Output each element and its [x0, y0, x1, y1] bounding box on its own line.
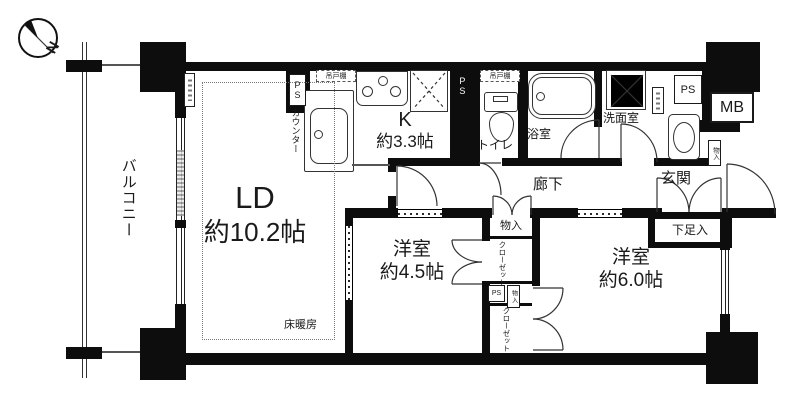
- washroom-label: 洗面室: [603, 112, 639, 125]
- sliding-door-bedroom-large[interactable]: [578, 209, 622, 218]
- window-shade-hatch: [177, 150, 184, 216]
- living-door[interactable]: [396, 166, 438, 208]
- toilet-door[interactable]: [478, 162, 502, 196]
- window-living-2: [176, 228, 185, 304]
- bathroom-label: 浴室: [527, 128, 551, 141]
- burner-icon-1: [362, 86, 373, 97]
- bedroom-small-name: 洋室: [358, 240, 466, 260]
- pillar-bottom-left: [140, 328, 186, 380]
- closet-large-doors[interactable]: [532, 287, 564, 351]
- meter-box-label: MB: [720, 99, 744, 117]
- balcony-railing: [82, 42, 87, 378]
- window-mullion: [175, 220, 186, 228]
- wall-top: [140, 62, 760, 71]
- hanging-cupboard-toilet-label: 吊戸棚: [490, 71, 511, 81]
- hallway-label: 廊下: [533, 177, 563, 193]
- wall-toilet-bath: [518, 71, 528, 166]
- hall-storage-doors[interactable]: [492, 196, 532, 216]
- wall-hall-south-a: [345, 208, 398, 218]
- kitchen-size: 約3.3帖: [355, 133, 455, 151]
- shoe-cabinet-label: 下足入: [672, 224, 708, 237]
- tiny-washroom-label: [652, 87, 664, 114]
- storage-mid-tiny: 物入: [507, 285, 520, 308]
- kitchen-name: K: [355, 110, 455, 131]
- pillar-top-right: [706, 42, 760, 92]
- bedroom-large-name: 洋室: [568, 248, 694, 268]
- wall-storage-div-2: [484, 281, 532, 284]
- hanging-cupboard-kitchen-label: 吊戸棚: [326, 71, 347, 81]
- sliding-partition-ld[interactable]: [345, 226, 353, 300]
- bedroom-large-label: 洋室 約6.0帖: [568, 248, 694, 291]
- north-compass-icon: [12, 12, 66, 66]
- floor-heating-area: [202, 82, 335, 340]
- toilet-button: [493, 96, 508, 102]
- bathroom-door[interactable]: [560, 120, 600, 160]
- burner-icon-2: [378, 76, 388, 86]
- counter-edge-line: [352, 164, 390, 166]
- toilet-tank: [484, 92, 518, 112]
- entrance-storage: 物入: [708, 140, 721, 166]
- bedroom-large-size: 約6.0帖: [568, 271, 694, 291]
- shoe-cabinet: 下足入: [655, 219, 725, 242]
- wall-east-lower: [720, 314, 730, 334]
- refrigerator-space: [410, 70, 448, 112]
- hall-storage-label: 物入: [490, 221, 532, 233]
- entrance-door[interactable]: [726, 164, 776, 216]
- kitchen-label: K 約3.3帖: [355, 110, 455, 151]
- wall-storage-div-1: [482, 236, 540, 239]
- washroom-door[interactable]: [620, 124, 658, 164]
- toilet-label: トイレ: [477, 139, 513, 152]
- ps-kitchen-right-label: PS: [457, 76, 466, 96]
- wall-storage-col-right: [532, 215, 540, 286]
- bedroom-small-size: 約4.5帖: [358, 263, 466, 283]
- wall-tick-bottom: [66, 347, 102, 359]
- storage-mid-text: 物入: [510, 290, 516, 304]
- washer-space: [606, 70, 646, 110]
- burner-icon-3: [390, 86, 401, 97]
- entrance-storage-label: 物入: [710, 147, 720, 160]
- hanging-cupboard-kitchen: 吊戸棚: [316, 70, 356, 82]
- sliding-door-bedroom-small[interactable]: [398, 209, 442, 218]
- floor-plan: N バルコニー 物入 クローゼット PS 物入: [0, 0, 800, 416]
- wall-ld-divider-bottom: [345, 300, 353, 355]
- balcony-label: バルコニー: [120, 158, 136, 238]
- ps-washroom: PS: [674, 75, 702, 104]
- vanity-basin-icon: [673, 122, 695, 153]
- pillar-bottom-right: [706, 332, 758, 384]
- wall-ld-divider-top: [345, 218, 353, 226]
- bath-faucet-icon: [536, 92, 545, 101]
- wall-hall-north-b: [502, 158, 528, 166]
- bedroom-small-label: 洋室 約4.5帖: [358, 240, 466, 283]
- closet-large-label: クローゼット: [502, 307, 510, 352]
- ps-mid-label: PS: [488, 285, 505, 302]
- wall-east-upper: [720, 218, 730, 250]
- window-bedroom-large: [721, 250, 729, 314]
- wall-tick-top: [66, 60, 102, 72]
- wall-washroom-east: [702, 71, 710, 124]
- tiny-wall-label: [184, 73, 195, 107]
- ps-washroom-label: PS: [681, 84, 696, 96]
- hanging-cupboard-toilet: 吊戸棚: [480, 70, 520, 82]
- closet-small-label: クローゼット: [498, 241, 506, 286]
- meter-box: MB: [710, 92, 754, 123]
- entrance-label: 玄関: [661, 171, 691, 187]
- ps-mid-text: PS: [492, 290, 501, 297]
- wall-bottom: [140, 353, 710, 365]
- wall-hall-north-a: [390, 158, 480, 166]
